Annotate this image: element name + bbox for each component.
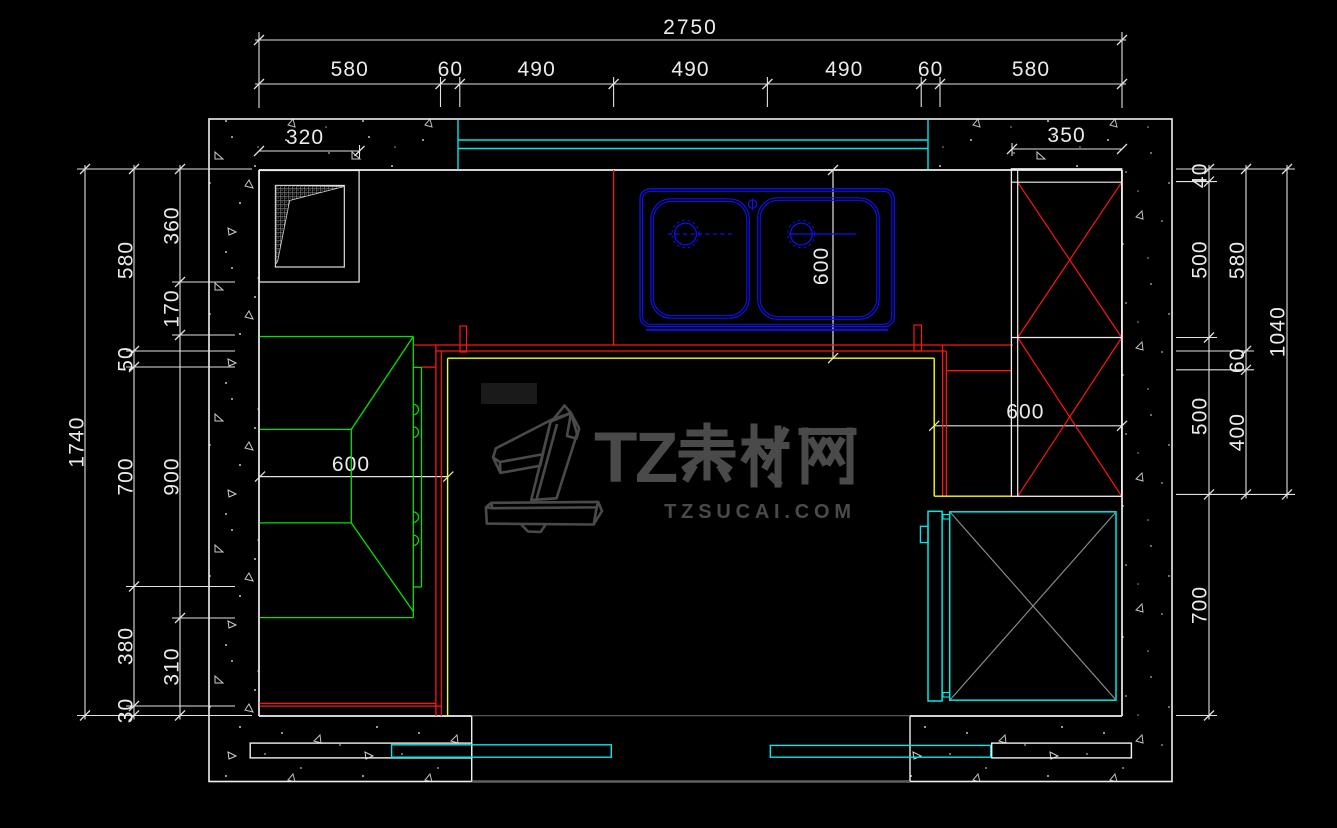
svg-text:600: 600 bbox=[810, 247, 833, 285]
svg-text:400: 400 bbox=[1226, 413, 1249, 451]
svg-text:TZSUCAI.COM: TZSUCAI.COM bbox=[664, 501, 856, 523]
svg-text:580: 580 bbox=[331, 58, 369, 81]
svg-text:1740: 1740 bbox=[66, 416, 89, 467]
svg-text:350: 350 bbox=[1047, 124, 1085, 147]
svg-text:50: 50 bbox=[115, 346, 138, 372]
svg-text:60: 60 bbox=[918, 58, 944, 81]
svg-text:580: 580 bbox=[115, 241, 138, 279]
svg-text:60: 60 bbox=[1226, 348, 1249, 374]
svg-text:170: 170 bbox=[161, 289, 184, 327]
svg-text:500: 500 bbox=[1189, 397, 1212, 435]
svg-text:490: 490 bbox=[518, 58, 556, 81]
svg-text:1040: 1040 bbox=[1267, 306, 1290, 357]
svg-text:2750: 2750 bbox=[663, 16, 718, 39]
svg-text:30: 30 bbox=[115, 698, 138, 724]
svg-text:360: 360 bbox=[161, 206, 184, 244]
svg-text:490: 490 bbox=[825, 58, 863, 81]
svg-text:380: 380 bbox=[115, 627, 138, 665]
svg-text:310: 310 bbox=[161, 647, 184, 685]
svg-text:40: 40 bbox=[1189, 163, 1212, 189]
svg-text:320: 320 bbox=[286, 126, 324, 149]
svg-text:60: 60 bbox=[438, 58, 464, 81]
svg-text:490: 490 bbox=[671, 58, 709, 81]
svg-text:580: 580 bbox=[1012, 58, 1050, 81]
svg-text:700: 700 bbox=[1189, 586, 1212, 624]
svg-text:900: 900 bbox=[161, 457, 184, 495]
svg-text:700: 700 bbox=[115, 457, 138, 495]
svg-text:TZ: TZ bbox=[594, 419, 677, 498]
svg-text:580: 580 bbox=[1226, 241, 1249, 279]
svg-text:500: 500 bbox=[1189, 240, 1212, 278]
